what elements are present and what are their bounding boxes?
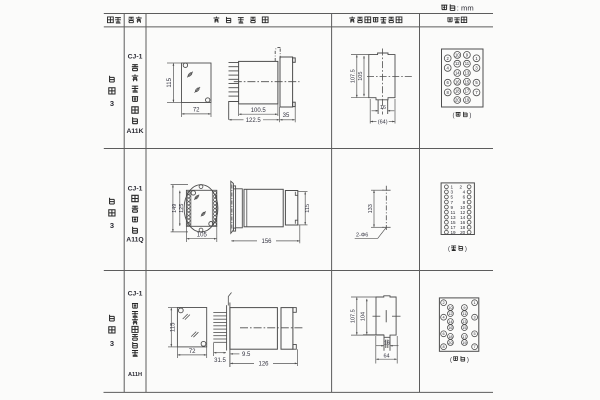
svg-text:: mm: : mm (457, 4, 474, 13)
svg-text:72: 72 (189, 349, 196, 355)
svg-text:104: 104 (361, 312, 367, 321)
svg-text:7: 7 (474, 345, 476, 349)
svg-text:13: 13 (462, 320, 466, 324)
svg-text:9.5: 9.5 (242, 352, 251, 358)
svg-text:19: 19 (465, 98, 470, 103)
svg-text:115: 115 (170, 322, 176, 332)
svg-text:31.5: 31.5 (214, 358, 226, 364)
svg-text:115: 115 (305, 204, 311, 213)
svg-text:4: 4 (443, 316, 445, 320)
svg-text:2-Φ6: 2-Φ6 (356, 233, 368, 239)
svg-text:3: 3 (110, 221, 114, 230)
svg-text:9: 9 (463, 306, 465, 310)
svg-text:20: 20 (455, 98, 460, 103)
svg-text:19: 19 (462, 341, 466, 345)
svg-text:(: ( (453, 113, 455, 119)
svg-text:CJ-1: CJ-1 (128, 186, 143, 193)
svg-text:12: 12 (455, 61, 460, 66)
svg-text:17: 17 (462, 335, 466, 339)
svg-text:1: 1 (474, 301, 476, 305)
svg-text:14: 14 (448, 320, 452, 324)
svg-text:11: 11 (462, 312, 466, 316)
svg-text:156: 156 (261, 239, 272, 245)
svg-text:13: 13 (465, 71, 470, 76)
svg-text:): ) (465, 247, 467, 253)
svg-text:(: ( (448, 247, 450, 253)
svg-text:133: 133 (368, 204, 374, 213)
svg-text:126: 126 (258, 362, 269, 368)
svg-text:A11Q: A11Q (126, 237, 143, 244)
svg-text:122.5: 122.5 (246, 118, 262, 124)
svg-text:107.5: 107.5 (351, 69, 357, 83)
svg-text:100.5: 100.5 (251, 108, 267, 114)
svg-text:5: 5 (474, 332, 476, 336)
svg-text:3: 3 (110, 339, 114, 348)
svg-text:149: 149 (172, 204, 178, 213)
svg-text:20: 20 (448, 341, 452, 345)
svg-text:10: 10 (455, 52, 460, 57)
svg-text:15: 15 (462, 326, 466, 330)
svg-text:72: 72 (193, 108, 200, 114)
svg-text:3: 3 (474, 316, 476, 320)
svg-text:20: 20 (460, 230, 466, 235)
svg-text:18: 18 (455, 89, 460, 94)
svg-text:10: 10 (448, 306, 452, 310)
svg-text:35: 35 (283, 113, 290, 119)
svg-text:): ) (467, 357, 469, 363)
svg-text:2: 2 (443, 301, 445, 305)
svg-text:19: 19 (451, 230, 457, 235)
svg-text:17: 17 (465, 89, 470, 94)
svg-text:125: 125 (179, 204, 185, 213)
svg-text:107.5: 107.5 (351, 309, 357, 323)
svg-text:15: 15 (465, 79, 470, 84)
svg-text:105: 105 (197, 233, 208, 239)
svg-text:115: 115 (167, 77, 173, 87)
svg-text:CJ-1: CJ-1 (128, 54, 143, 61)
svg-text:6: 6 (443, 332, 445, 336)
svg-text:16: 16 (384, 340, 390, 346)
svg-text:16: 16 (380, 105, 386, 111)
svg-text:CJ-1: CJ-1 (128, 291, 143, 298)
svg-text:64: 64 (383, 353, 389, 359)
svg-text:(64): (64) (378, 120, 388, 126)
svg-text:11: 11 (465, 61, 470, 66)
svg-text:3: 3 (110, 99, 114, 108)
svg-text:A11H: A11H (128, 372, 142, 378)
svg-text:105: 105 (358, 72, 364, 81)
svg-text:18: 18 (448, 335, 452, 339)
svg-text:16: 16 (448, 326, 452, 330)
svg-text:8: 8 (443, 345, 445, 349)
svg-text:16: 16 (455, 79, 460, 84)
svg-text:A11K: A11K (126, 128, 143, 135)
svg-text:(: ( (450, 357, 452, 363)
svg-text:): ) (469, 113, 471, 119)
svg-text:14: 14 (455, 71, 460, 76)
svg-text:12: 12 (448, 312, 452, 316)
